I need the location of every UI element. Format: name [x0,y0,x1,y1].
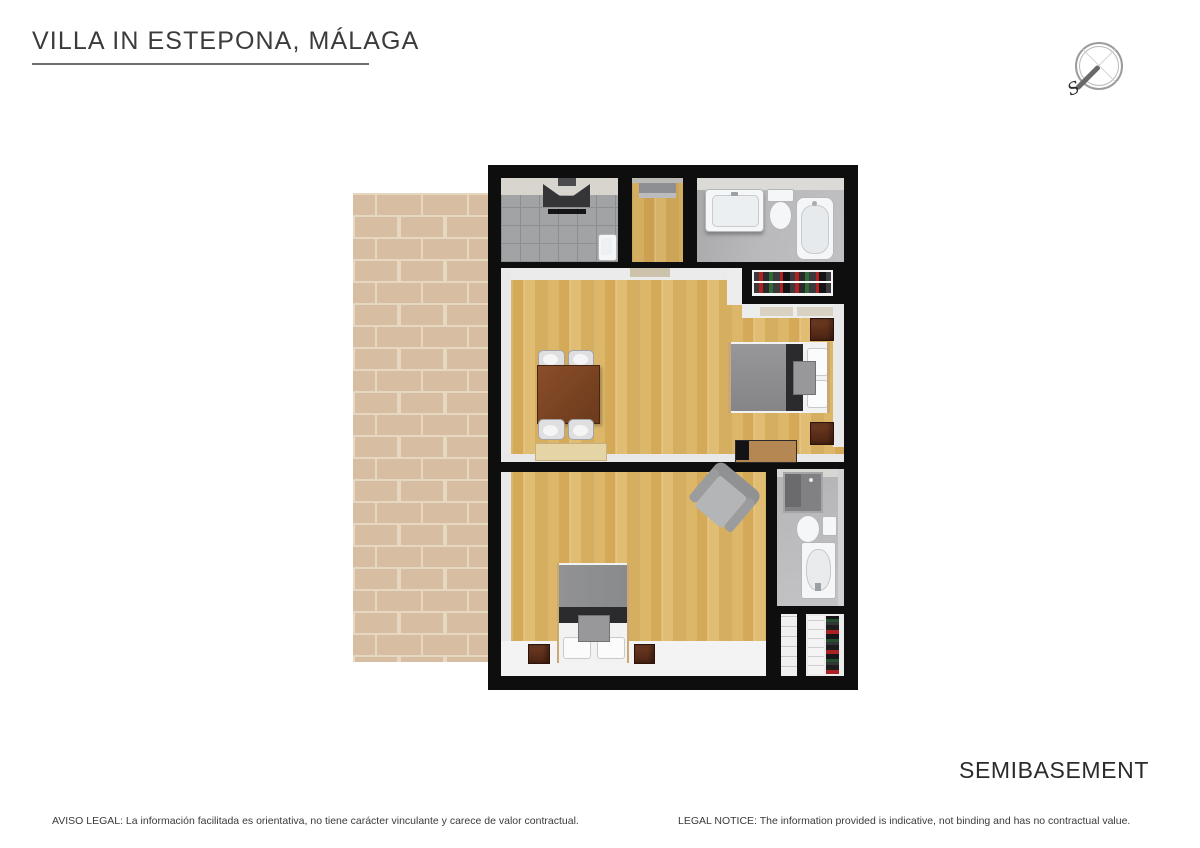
door-mat [630,268,670,277]
ensuite-bathroom [777,469,844,606]
bed-frame-edge [827,342,830,413]
shower-tray-shadow [785,474,801,507]
title-underline [32,63,369,65]
bed-frame-edge [627,563,629,663]
shower-drain [809,478,813,482]
wardrobe [742,266,858,302]
ensuite-side-wall [838,469,844,606]
closet [806,614,844,676]
page-title: VILLA IN ESTEPONA, MÁLAGA [32,27,419,56]
terrace-window-wall [501,472,511,641]
dresser-end-panel [736,441,749,460]
terrace-brick-pattern [353,193,488,662]
ensuite-faucet [815,583,821,591]
chair-seat [543,354,558,365]
chair-seat [543,425,558,436]
bathtub-faucet [812,201,817,206]
dining-chair [538,419,565,440]
utility-sink [598,234,617,261]
ensuite-cistern [822,516,837,536]
shelf-unit [781,614,797,676]
fireplace-top [558,178,576,186]
nightstand [810,318,834,341]
wardrobe-side-wall [727,268,742,305]
dining-table [537,365,600,424]
legal-notice-english: LEGAL NOTICE: The information provided i… [678,815,1130,827]
toilet-bowl [769,201,792,230]
chair-seat [573,354,588,365]
dining-chair [568,419,594,440]
door-mat [639,183,676,193]
closet-items [826,616,839,674]
utility-room [501,178,618,262]
bed-2 [557,563,629,663]
bed-1 [728,342,830,413]
bed-duvet [731,344,786,411]
floor-name-label: SEMIBASEMENT [959,757,1149,784]
floor-plan [488,165,858,690]
shelf-recess [797,307,833,316]
utility-sink-basin [601,238,612,255]
vanity-basin [712,195,759,227]
bed-duvet [559,565,627,607]
chair-seat [573,425,588,436]
bedroom1-right-wall-face [833,304,844,447]
nightstand [528,644,550,664]
sideboard [535,443,607,461]
shower [783,472,823,513]
vanity-faucet [731,192,738,196]
door-threshold [639,193,676,198]
bathtub [796,197,834,260]
page: { "header": { "title": "VILLA IN ESTEPON… [0,0,1200,848]
bed-tray [793,361,816,395]
ensuite-toilet [796,515,820,543]
hallway [632,178,683,262]
bathroom [697,178,844,262]
terrace-window-wall [501,268,511,454]
closet-shelves [808,616,824,674]
legal-notice-spanish: AVISO LEGAL: La información facilitada e… [52,815,579,827]
dresser [735,440,797,463]
bathroom-vanity [705,189,764,232]
shelf-recess [760,307,793,316]
terrace [353,193,488,662]
compass-icon [1075,42,1123,90]
bed-tray [578,615,610,642]
bathtub-basin [801,205,829,254]
ensuite-vanity [801,542,836,599]
wardrobe-shelf-band [742,304,844,318]
nightstand [810,422,834,445]
wardrobe-interior [752,270,833,296]
clothes-rail [752,281,833,283]
nightstand [634,644,655,664]
fireplace-hearth [548,209,586,214]
